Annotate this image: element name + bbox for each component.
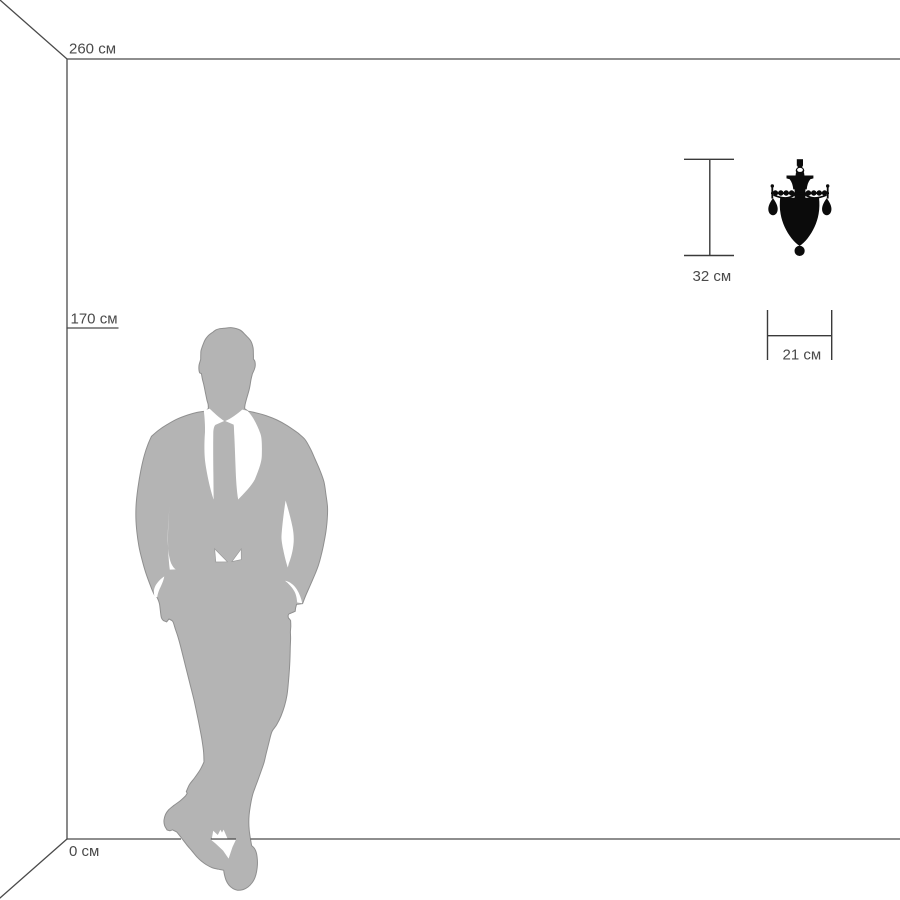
svg-text:32 см: 32 см xyxy=(693,268,732,285)
svg-text:21 см: 21 см xyxy=(783,347,822,364)
svg-text:0 см: 0 см xyxy=(69,843,99,860)
svg-text:170 см: 170 см xyxy=(71,311,118,328)
svg-text:260 см: 260 см xyxy=(69,41,116,58)
